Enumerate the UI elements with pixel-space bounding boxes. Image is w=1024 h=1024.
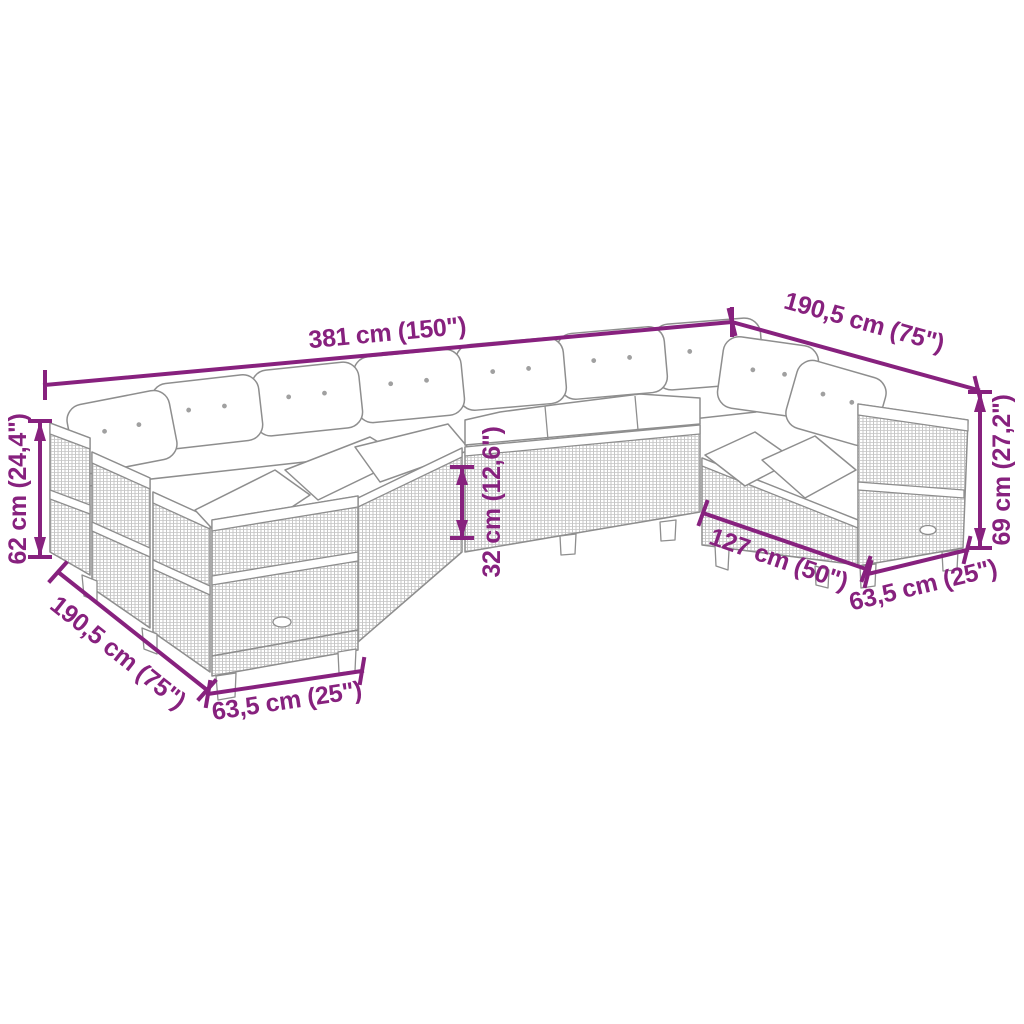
sofa-line-art bbox=[50, 317, 968, 700]
dimension-label: 62 cm (24,4") bbox=[4, 413, 32, 564]
dimension-label: 32 cm (12,6") bbox=[478, 426, 506, 577]
right-armrest-panel bbox=[858, 404, 968, 588]
back-cushion bbox=[250, 361, 364, 438]
product-dimension-diagram: 381 cm (150") 190,5 cm (75") 62 cm (24,4… bbox=[0, 0, 1024, 1024]
back-cushion bbox=[352, 348, 466, 424]
dimension-label: 69 cm (27,2") bbox=[988, 394, 1016, 545]
sofa-foot bbox=[660, 520, 676, 541]
dimension-armrest-height: 69 cm (27,2") bbox=[970, 392, 1016, 548]
panel-hole bbox=[273, 617, 291, 627]
panel-hole bbox=[920, 526, 936, 535]
left-arm-end-panel bbox=[212, 496, 358, 700]
sofa-foot bbox=[338, 649, 356, 673]
sofa-foot bbox=[560, 534, 576, 555]
dimension-backrest-height: 62 cm (24,4") bbox=[4, 413, 50, 564]
diagram-canvas: 381 cm (150") 190,5 cm (75") 62 cm (24,4… bbox=[0, 0, 1024, 1024]
